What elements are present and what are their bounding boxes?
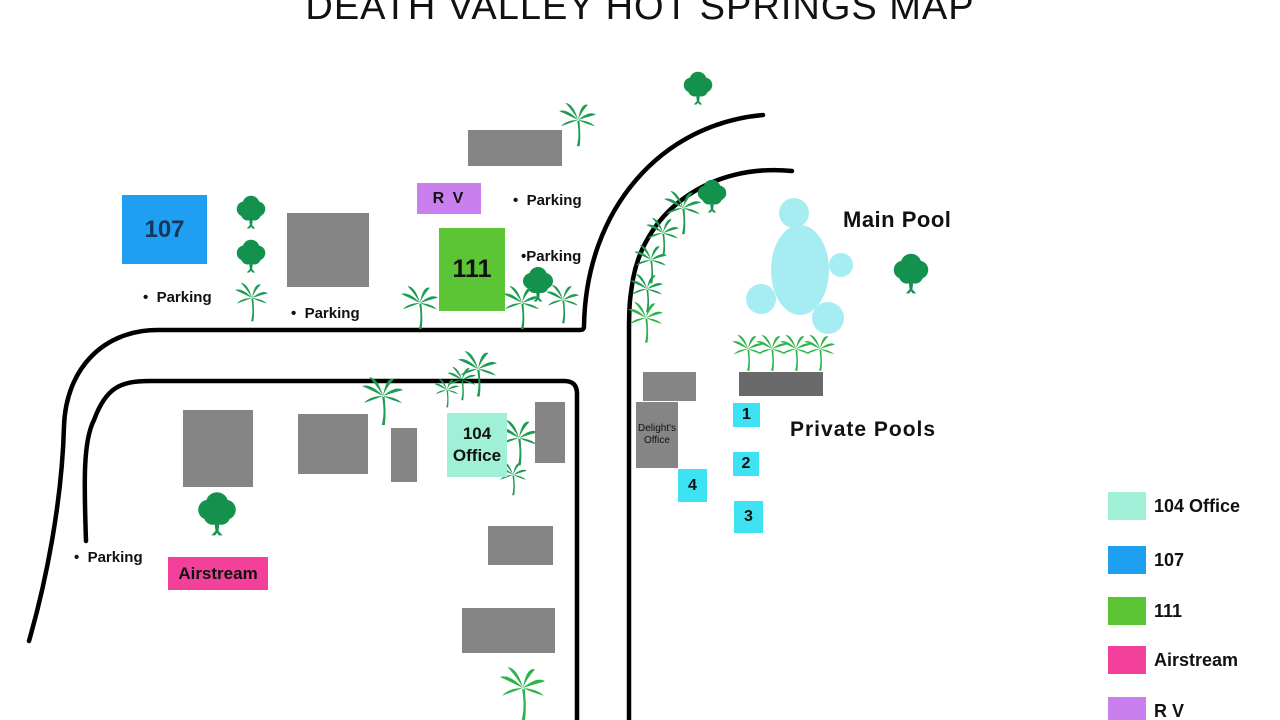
delights-office-label: Delight's Office (638, 423, 676, 447)
legend-item: 111 (1108, 597, 1182, 625)
private-pool-4-label: 4 (688, 477, 697, 495)
building-rv: R V (417, 183, 481, 214)
building-111-label: 111 (453, 255, 492, 284)
private-pool-2-label: 2 (742, 455, 751, 473)
building (287, 213, 369, 287)
palms-bright (500, 302, 835, 720)
palm-tree-icon (628, 302, 663, 343)
private-pool-3-label: 3 (744, 508, 753, 526)
building-airstream-label: Airstream (178, 564, 257, 584)
palm-tree-icon (447, 367, 476, 401)
palm-tree-icon (500, 667, 545, 720)
private-pools-label: Private Pools (790, 418, 936, 442)
map-canvas (0, 0, 1280, 720)
building (391, 428, 417, 482)
private-pool-3: 3 (734, 501, 763, 533)
building-104-office-label: 104 Office (453, 423, 501, 467)
private-pool-1: 1 (733, 403, 760, 427)
legend-item: Airstream (1108, 646, 1238, 674)
tree-icon (684, 72, 713, 105)
main-pool-shape (746, 198, 853, 334)
building (468, 130, 562, 166)
legend-label: Airstream (1154, 650, 1238, 671)
parking-label: • Parking (74, 549, 143, 566)
palm-tree-icon (546, 285, 579, 323)
delights-office: Delight's Office (636, 402, 678, 468)
private-pool-2: 2 (733, 452, 759, 476)
parking-label: • Parking (143, 289, 212, 306)
tree-icon (894, 254, 929, 294)
building-107-label: 107 (144, 216, 184, 244)
tree-icon (523, 267, 553, 302)
building (643, 372, 696, 401)
legend-swatch-airstream (1108, 646, 1146, 674)
palm-tree-icon (559, 103, 596, 146)
private-pool-4: 4 (678, 469, 707, 502)
tree-icon (237, 196, 266, 229)
palm-tree-icon (756, 335, 787, 371)
building-111: 111 (439, 228, 505, 311)
palm-tree-icon (362, 377, 403, 425)
legend-swatch-104-office (1108, 492, 1146, 520)
building-107: 107 (122, 195, 207, 264)
palm-tree-icon (458, 351, 497, 397)
private-pools-building (739, 372, 823, 396)
page-title: DEATH VALLEY HOT SPRINGS MAP (0, 0, 1280, 29)
palm-tree-icon (732, 335, 763, 371)
building (488, 526, 553, 565)
palm-tree-icon (780, 335, 811, 371)
legend-label: 104 Office (1154, 496, 1240, 517)
main-pool-label: Main Pool (843, 207, 951, 233)
building (535, 402, 565, 463)
tree-icon (237, 240, 266, 273)
legend-label: 111 (1154, 601, 1182, 622)
parking-label: • Parking (513, 192, 582, 209)
parking-label: •Parking (521, 248, 581, 265)
palm-tree-icon (804, 335, 835, 371)
palm-tree-icon (401, 286, 438, 329)
legend-swatch-111 (1108, 597, 1146, 625)
parking-label: • Parking (291, 305, 360, 322)
legend-item: 104 Office (1108, 492, 1240, 520)
building (462, 608, 555, 653)
building-airstream: Airstream (168, 557, 268, 590)
tree-icon (198, 492, 236, 535)
building-104-office: 104 Office (447, 413, 507, 477)
legend-label: R V (1154, 701, 1184, 720)
legend-item: R V (1108, 697, 1184, 720)
hot-springs-map: DEATH VALLEY HOT SPRINGS MAP 107 R V 111… (0, 0, 1280, 720)
building (183, 410, 253, 487)
palm-tree-icon (235, 283, 268, 321)
palm-tree-icon (646, 218, 679, 256)
building (298, 414, 368, 474)
building-rv-label: R V (433, 190, 466, 208)
legend-label: 107 (1154, 550, 1184, 571)
legend-swatch-rv (1108, 697, 1146, 720)
legend-swatch-107 (1108, 546, 1146, 574)
private-pool-1-label: 1 (742, 406, 751, 424)
legend-item: 107 (1108, 546, 1184, 574)
